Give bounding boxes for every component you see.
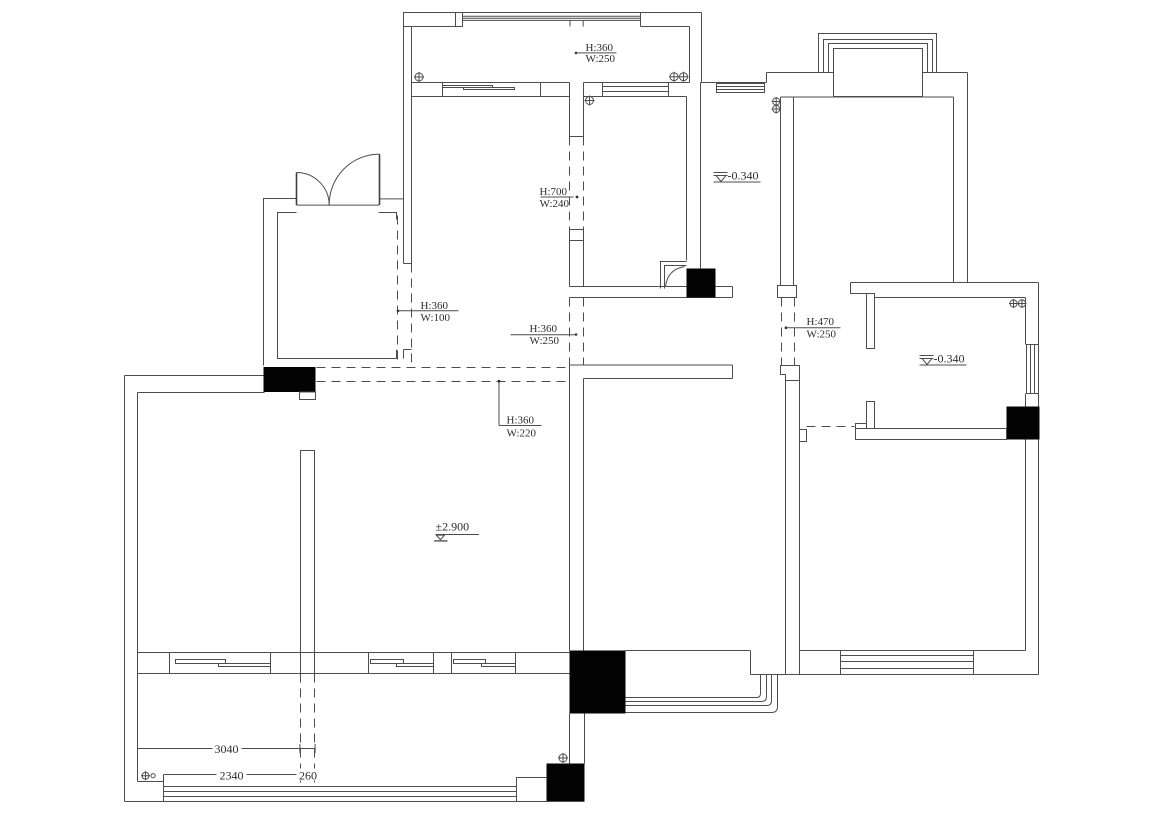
- svg-text:W:250: W:250: [530, 335, 560, 347]
- svg-text:H:700: H:700: [540, 186, 568, 198]
- svg-text:H:360: H:360: [530, 323, 558, 335]
- svg-text:W:250: W:250: [807, 328, 837, 340]
- svg-text:260: 260: [299, 769, 317, 783]
- svg-text:H:470: H:470: [807, 316, 835, 328]
- svg-text:-0.340: -0.340: [934, 352, 965, 366]
- svg-text:±2.900: ±2.900: [436, 520, 470, 534]
- svg-text:3040: 3040: [215, 742, 239, 756]
- svg-text:W:240: W:240: [540, 198, 570, 210]
- svg-text:H:360: H:360: [507, 415, 535, 427]
- svg-text:W:220: W:220: [507, 428, 537, 440]
- svg-text:W:100: W:100: [421, 312, 451, 324]
- svg-text:W:250: W:250: [586, 53, 616, 65]
- svg-text:H:360: H:360: [421, 300, 449, 312]
- svg-text:2340: 2340: [220, 769, 244, 783]
- svg-text:-0.340: -0.340: [728, 169, 759, 183]
